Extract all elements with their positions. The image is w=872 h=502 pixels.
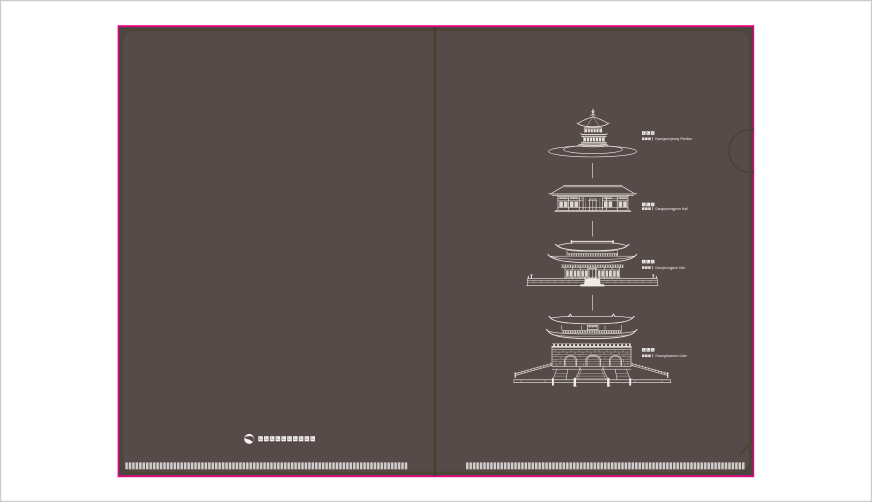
svg-text:Geunjeongjeon Hall: Geunjeongjeon Hall	[655, 266, 685, 270]
svg-text:Hyangwonjeong Pavilion: Hyangwonjeong Pavilion	[655, 137, 692, 141]
svg-text:Gwanghwamun Gate: Gwanghwamun Gate	[655, 354, 687, 358]
svg-text:Gangnyeongjeon Hall: Gangnyeongjeon Hall	[655, 207, 688, 211]
